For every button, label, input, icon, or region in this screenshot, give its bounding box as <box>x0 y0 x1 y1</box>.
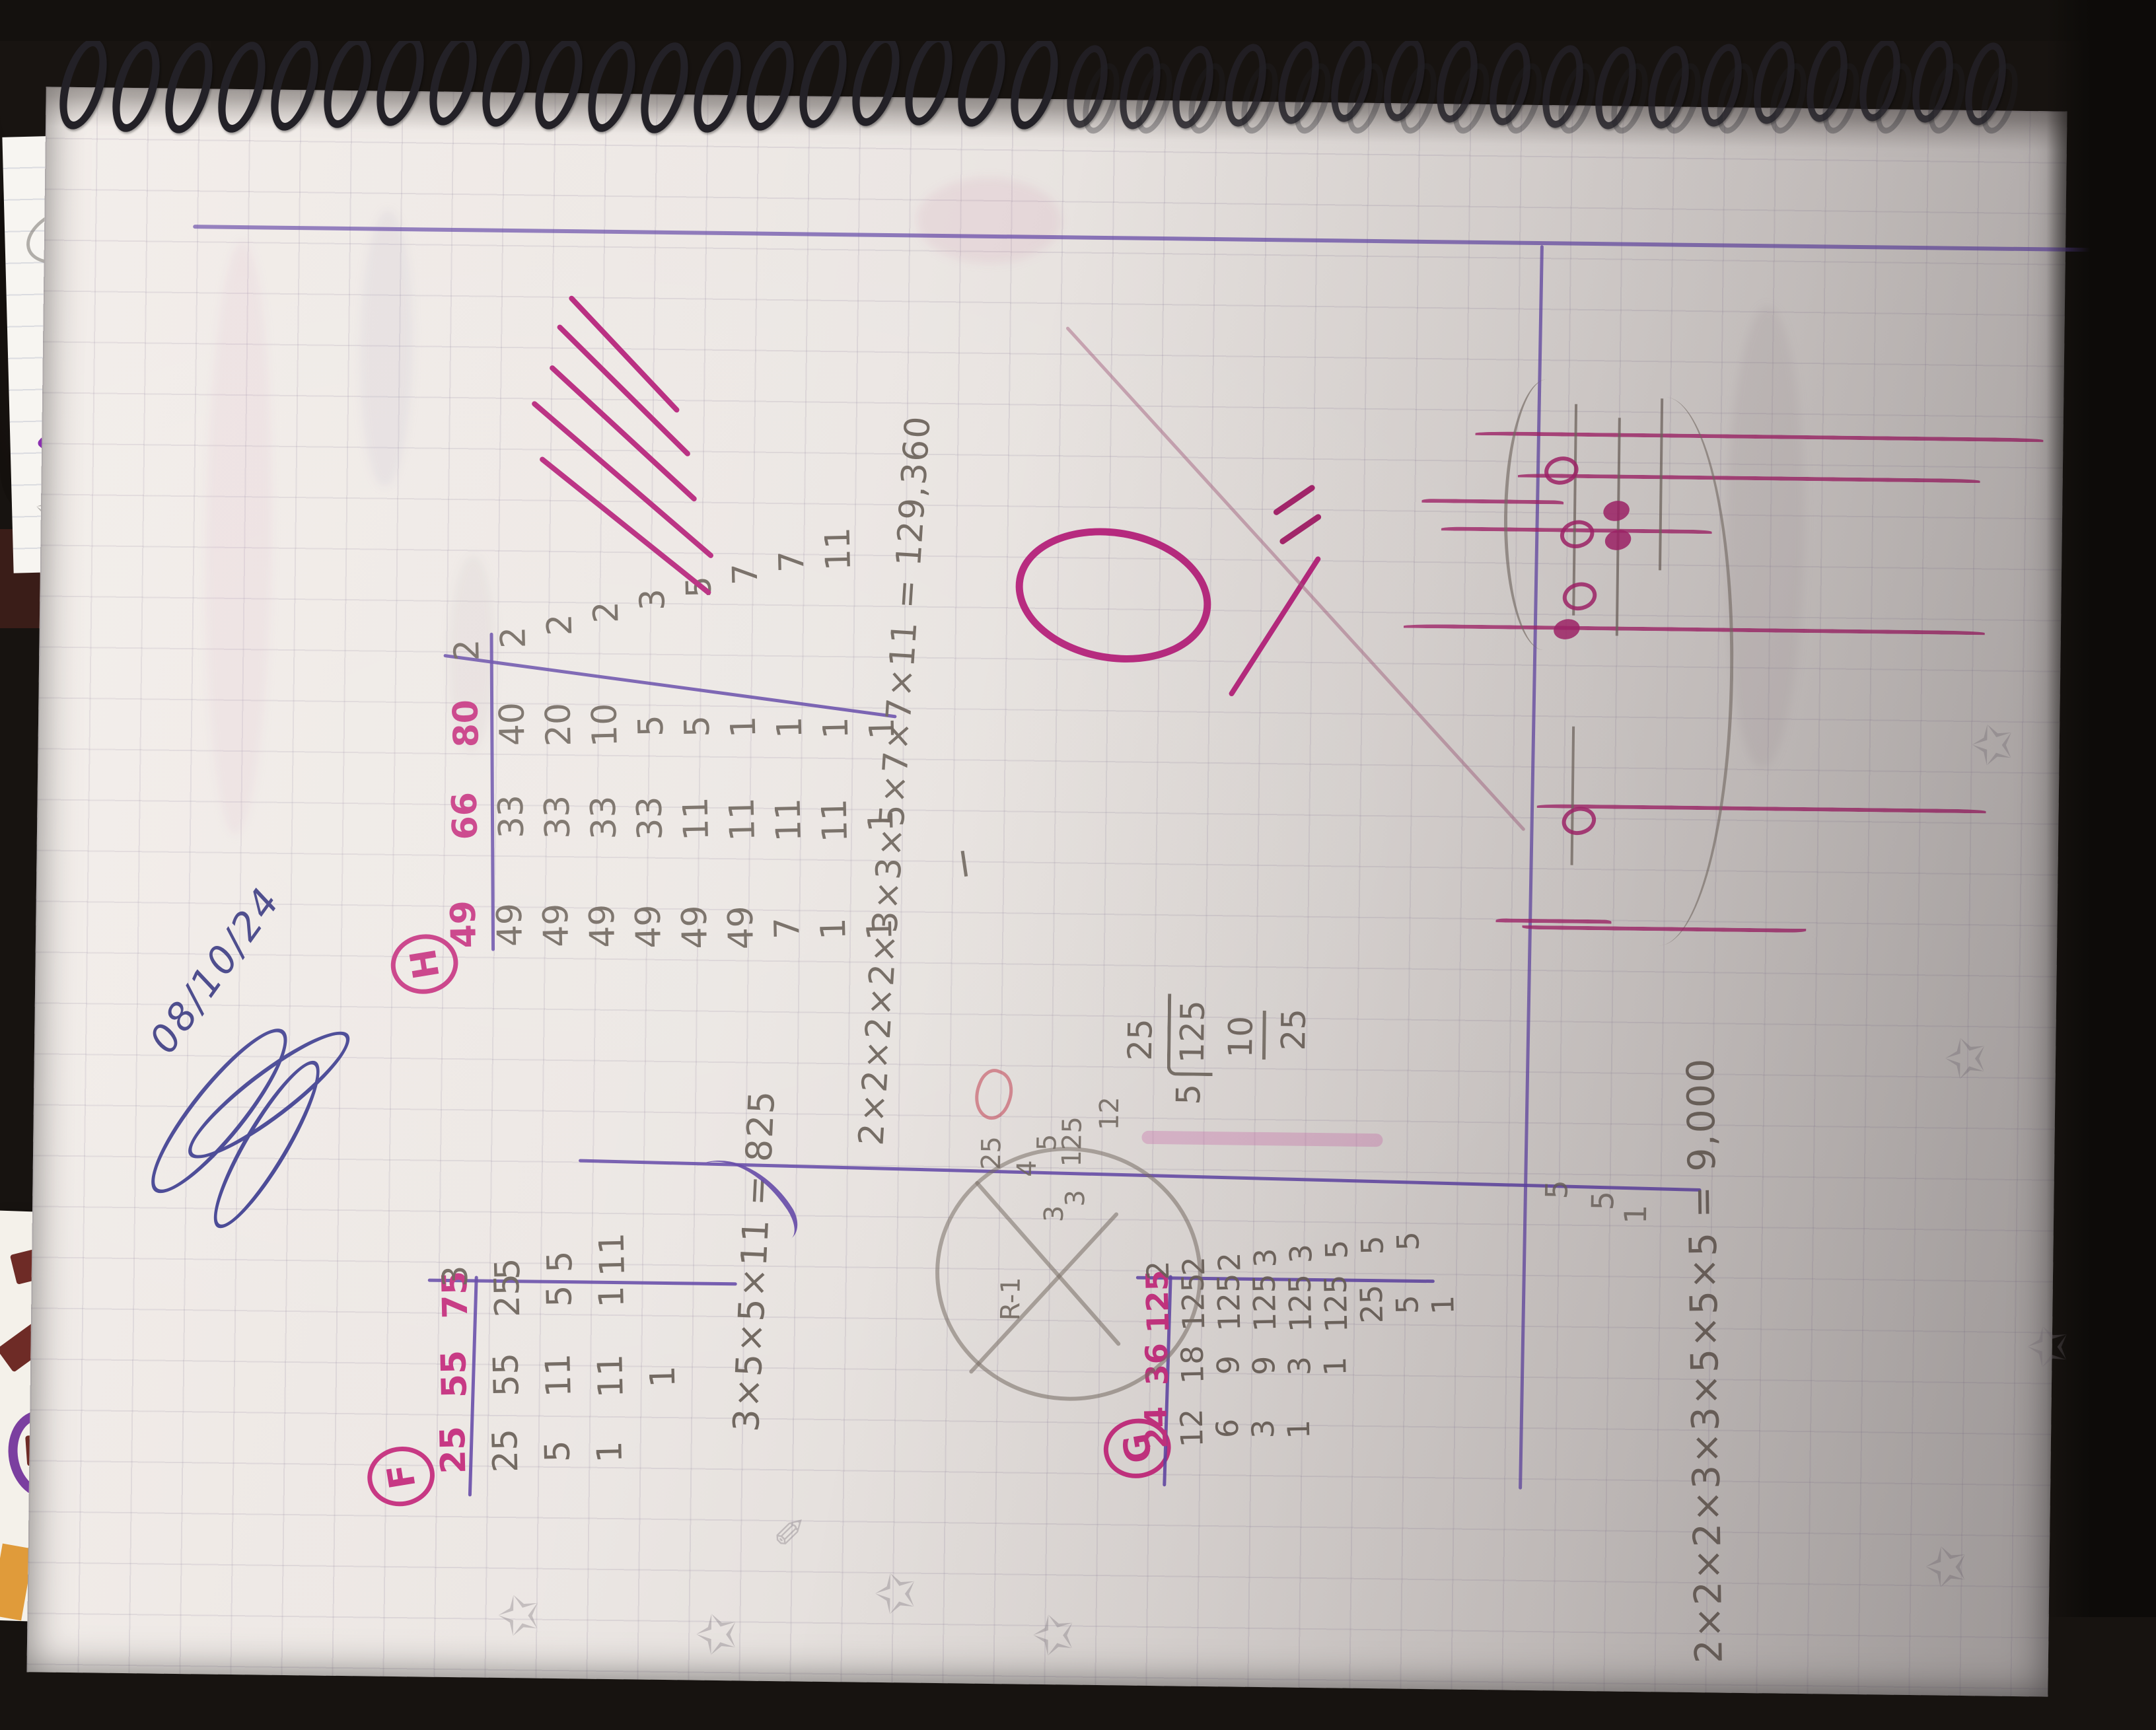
scratch-number: 5 <box>1585 1191 1620 1211</box>
spiral-binding <box>63 34 2084 133</box>
desk-shadow-right <box>2046 0 2156 1617</box>
notebook-page: 08/10/24 F 25 55 75 3 25 55 <box>26 87 2067 1696</box>
desk-shadow-top <box>0 0 2156 41</box>
scratch-number: 5 <box>1538 1180 1574 1200</box>
music-staff-doodle <box>1370 354 2044 976</box>
note-head <box>1559 803 1599 838</box>
scratch-number: 1 <box>1618 1204 1653 1224</box>
notebook-photo: ✩ 08/10/24 <box>0 0 2156 1617</box>
staff-line <box>1518 474 1980 484</box>
note-stem <box>1571 727 1575 865</box>
staff-line <box>1495 918 1611 923</box>
